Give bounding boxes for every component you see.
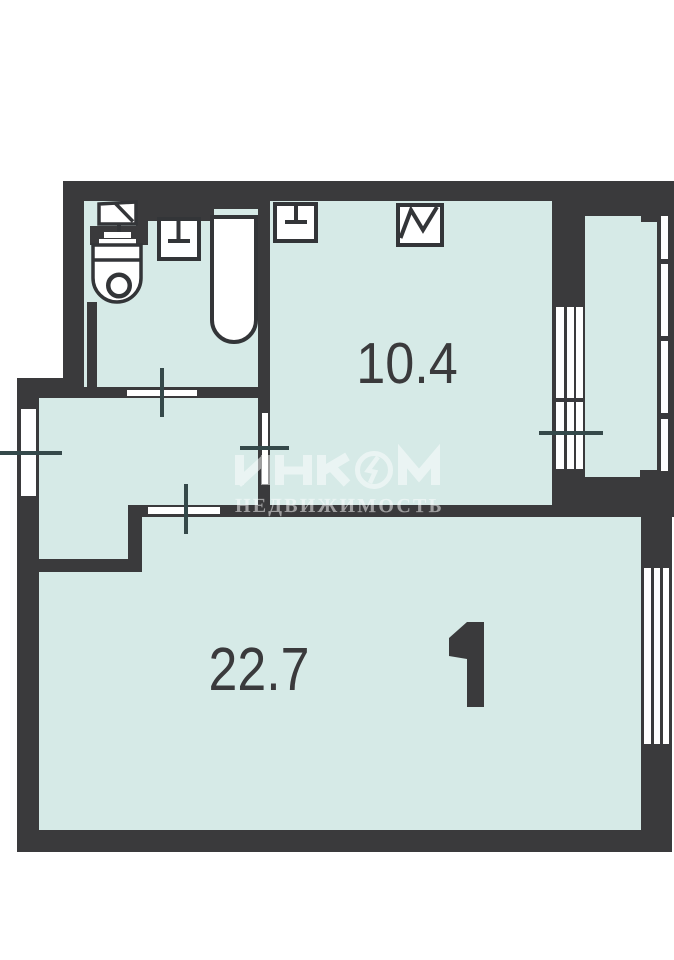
svg-text:22.7: 22.7 — [209, 635, 310, 703]
svg-text:НЕДВИЖИМОСТЬ: НЕДВИЖИМОСТЬ — [235, 495, 444, 517]
svg-text:10.4: 10.4 — [356, 330, 458, 395]
